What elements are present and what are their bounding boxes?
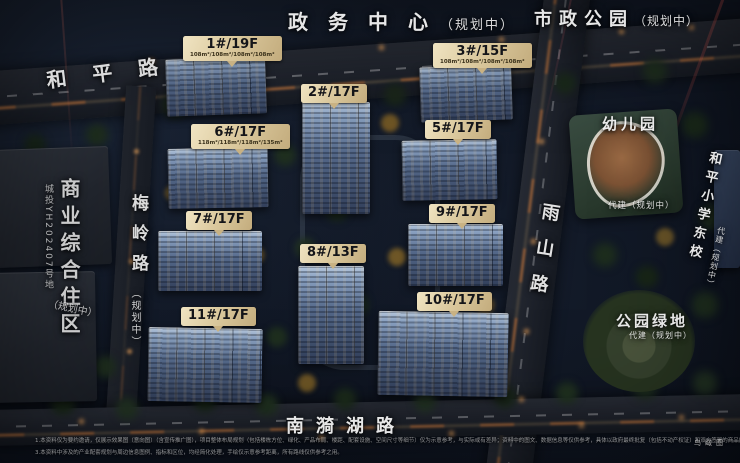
park-green-label: 公园绿地 bbox=[616, 310, 688, 331]
road-label-meiling: 梅岭路 bbox=[126, 194, 151, 284]
building-9-label: 9#/17F bbox=[436, 206, 488, 220]
building-plate-11: 11#/17F bbox=[181, 307, 256, 326]
building-1-label: 1#/19F bbox=[190, 38, 275, 52]
building-plate-5: 5#/17F bbox=[425, 120, 491, 139]
city-park-label: 市政公园（规划中） bbox=[534, 5, 699, 31]
commercial-block-subtitle: 城投YH202407号地 bbox=[42, 184, 55, 291]
gov-center-status: （规划中） bbox=[440, 18, 515, 33]
kindergarten-label: 幼儿园 bbox=[602, 113, 659, 134]
park-green-status: 代建（规划中） bbox=[629, 330, 692, 341]
building-5 bbox=[401, 139, 497, 201]
building-2 bbox=[302, 102, 370, 214]
disclaimer-line-1: 1.本资料仅为要约邀请，仅展示效果图（意向图）（含宣传推广图），项目整体布局规划… bbox=[35, 436, 675, 448]
building-6 bbox=[167, 147, 268, 209]
park-green-area bbox=[583, 290, 695, 392]
building-plate-1: 1#/19F 108m²/108m²/108m²/108m² bbox=[183, 36, 282, 61]
disclaimer-line-2: 3.本资料中涉及的产业配套规划与周边信息图例、指标和区位，均经简化处理，手绘仅示… bbox=[35, 448, 675, 460]
road-label-meiling-status: （规划中） bbox=[127, 288, 142, 348]
building-3-areas: 108m²/108m²/108m²/108m² bbox=[440, 60, 525, 66]
building-plate-7: 7#/17F bbox=[186, 211, 252, 230]
building-8 bbox=[298, 266, 364, 364]
aerial-view-tag: 鸟瞰图 bbox=[694, 438, 727, 448]
building-9 bbox=[408, 224, 503, 286]
city-park-status: （规划中） bbox=[634, 14, 699, 28]
building-3 bbox=[419, 64, 513, 122]
building-plate-6: 6#/17F 118m²/118m²/118m²/135m² bbox=[191, 124, 290, 149]
building-11-label: 11#/17F bbox=[188, 309, 249, 323]
road-label-nanyihu: 南漪湖路 bbox=[286, 412, 406, 438]
gov-center-title: 政务中心 bbox=[288, 10, 448, 34]
city-park-title: 市政公园 bbox=[534, 9, 634, 30]
building-10-label: 10#/17F bbox=[424, 294, 485, 308]
building-6-areas: 118m²/118m²/118m²/135m² bbox=[198, 141, 283, 147]
disclaimer-text: 1.本资料仅为要约邀请，仅展示效果图（意向图）（含宣传推广图），项目整体布局规划… bbox=[35, 436, 675, 459]
building-2-label: 2#/17F bbox=[308, 86, 360, 100]
building-10 bbox=[377, 311, 508, 397]
kindergarten-status: 代建（规划中） bbox=[608, 199, 675, 211]
gov-center-label: 政务中心（规划中） bbox=[288, 6, 515, 35]
building-plate-9: 9#/17F bbox=[429, 204, 495, 223]
building-5-label: 5#/17F bbox=[432, 122, 484, 136]
building-plate-8: 8#/13F bbox=[300, 244, 366, 263]
building-plate-10: 10#/17F bbox=[417, 292, 492, 311]
building-7-label: 7#/17F bbox=[193, 213, 245, 227]
building-11 bbox=[147, 327, 262, 403]
building-plate-3: 3#/15F 108m²/108m²/108m²/108m² bbox=[433, 43, 532, 68]
building-plate-2: 2#/17F bbox=[301, 84, 367, 103]
street-lamps bbox=[0, 0, 3, 3]
building-6-label: 6#/17F bbox=[198, 126, 283, 140]
building-1-areas: 108m²/108m²/108m²/108m² bbox=[190, 53, 275, 59]
building-3-label: 3#/15F bbox=[440, 45, 525, 59]
building-8-label: 8#/13F bbox=[307, 246, 359, 260]
aerial-site-plan: 政务中心（规划中） 市政公园（规划中） 和平路 梅岭路 （规划中） 雨山路 南漪… bbox=[0, 0, 740, 463]
building-7 bbox=[158, 231, 262, 291]
